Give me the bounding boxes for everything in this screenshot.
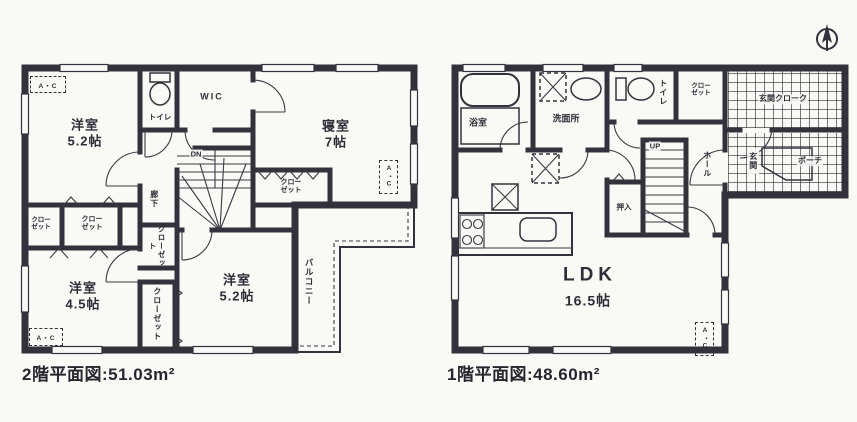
room-name: 洋室	[65, 280, 100, 296]
floor2-closet-doors	[50, 170, 321, 346]
floor1-stairs	[643, 150, 686, 232]
bedroom-closet-label: クロー ゼット	[281, 179, 302, 195]
room-size: 5.2帖	[67, 133, 102, 149]
wic-label: WIC	[200, 92, 224, 103]
floor2-doors	[106, 80, 285, 282]
toilet-1f-label: トイレ	[658, 76, 668, 108]
washroom-label: 洗面所	[552, 114, 579, 125]
room-label-western-a: 洋室 5.2帖	[67, 117, 102, 148]
hall-label: ホール	[702, 147, 712, 181]
corridor-closet-label: クローゼット	[148, 224, 166, 268]
room-name: 洋室	[219, 272, 254, 288]
room-label-bedroom: 寝室 7帖	[322, 118, 350, 149]
ldk-name-label: LDK	[563, 265, 617, 288]
bathtub-icon	[461, 74, 519, 144]
stairs-up-label: UP	[649, 142, 661, 151]
toilet-2f-label: トイレ	[149, 113, 172, 122]
room-size: 4.5帖	[65, 296, 100, 312]
room-size: 5.2帖	[219, 288, 254, 304]
room-size: 7帖	[322, 134, 350, 150]
entrance-cloak-label: 玄関クローク	[758, 94, 808, 104]
entrance-porch-tiles	[728, 133, 842, 192]
toilet-1f-icon	[616, 78, 654, 100]
floorplan-linework	[0, 0, 857, 422]
washing-machine-icon	[540, 73, 566, 101]
room-label-western-c: 洋室 5.2帖	[219, 272, 254, 303]
balcony-label: バルコニー	[304, 249, 314, 315]
porch-label: ポーチ	[797, 156, 823, 166]
room-label-western-b: 洋室 4.5帖	[65, 280, 100, 311]
room-name: 洋室	[67, 117, 102, 133]
ac-mark-room-b: A・C	[29, 328, 63, 346]
refrigerator-spot-icon	[532, 154, 559, 183]
floor1-caption: 1階平面図:48.60m²	[447, 360, 600, 385]
closet-1f-label: クロー ゼット	[691, 83, 711, 98]
hallway-label: 廊下	[149, 187, 159, 211]
stairs-dn-label: DN	[190, 150, 203, 159]
toilet-2f-icon	[150, 73, 170, 105]
closet-small-left-label: クロー ゼット	[31, 217, 51, 232]
closet-strip-label: クローゼット	[152, 279, 162, 349]
utility-box-icon	[492, 184, 518, 210]
ldk-size-label: 16.5帖	[565, 293, 611, 310]
genkan-label: 玄関	[747, 148, 759, 174]
ac-mark-room-a: A・C	[30, 76, 66, 93]
compass-icon	[817, 24, 837, 51]
oshiire-label: 押入	[617, 203, 632, 212]
ac-mark-bedroom: A・C	[379, 160, 398, 194]
floor2-caption: 2階平面図:51.03m²	[22, 360, 175, 385]
floorplan-scan: 洋室 5.2帖 トイレ WIC 寝室 7帖 クロー ゼット 廊下 DN クローゼ…	[0, 0, 857, 422]
room-name: 寝室	[322, 118, 350, 134]
closet-mid-left-label: クロー ゼット	[82, 216, 103, 232]
bath-label: 浴室	[469, 118, 487, 129]
kitchen-counter-icon	[458, 213, 572, 255]
ac-mark-ldk: A・C	[695, 322, 714, 356]
sink-icon	[571, 78, 601, 100]
